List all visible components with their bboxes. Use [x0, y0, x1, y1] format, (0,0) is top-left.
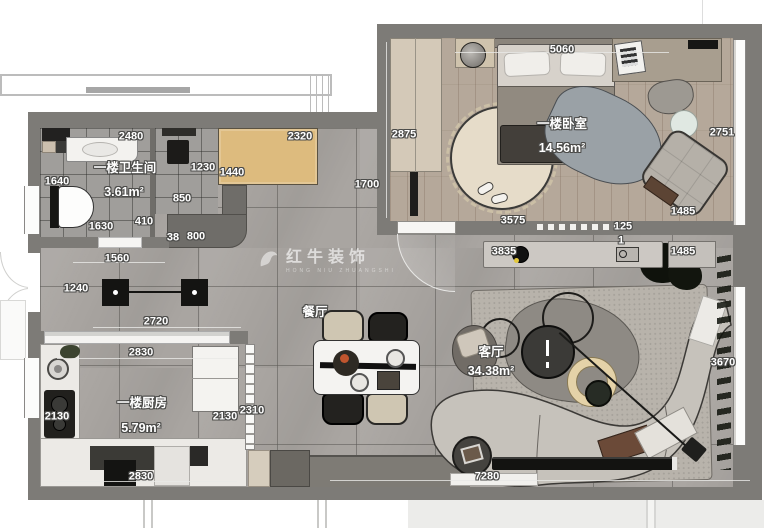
fridge [192, 346, 239, 412]
watermark-subtitle: HONG NIU ZHUANGSHI [286, 268, 396, 274]
ceiling-light-2-dot [192, 290, 197, 295]
coffee-table-dot [546, 362, 549, 368]
exterior-seam-topright [702, 0, 703, 24]
window-living-right [733, 287, 746, 445]
bench-block-beige [248, 450, 270, 487]
wall-bedroom-left [377, 24, 390, 235]
watermark-brand: 红牛装饰 [286, 250, 396, 266]
wall-bath-laundry-divider [150, 128, 155, 237]
ceiling-light-1-dot [113, 290, 118, 295]
side-stool-green [585, 380, 612, 407]
wall-bottom [28, 487, 762, 500]
bedroom-wall-dashes [537, 224, 615, 230]
entry-opening [28, 253, 40, 312]
centerpiece-flower [340, 354, 349, 363]
stove-burner-1 [51, 396, 68, 413]
nightstand-lamp [460, 42, 486, 68]
wall-bedroom-top [377, 24, 762, 38]
wall-bathroom-bottom-a [40, 237, 98, 248]
table-plate-2 [350, 373, 369, 392]
exterior-column-left1 [143, 500, 153, 528]
wardrobe-divider [415, 38, 416, 172]
console-speaker-dot [514, 258, 519, 263]
dim-line-2830-top [57, 358, 237, 359]
wall-kitchen-top-a [28, 331, 44, 344]
entry-door-arc-1 [0, 252, 30, 288]
counter-block-dark [190, 446, 208, 466]
dim-line-2830-bottom [57, 481, 237, 482]
entry-porch-outline [0, 300, 26, 360]
dining-chair-sw [322, 393, 364, 425]
console-device-knob [619, 250, 627, 258]
laundry-counter-vertical [222, 185, 247, 216]
window-kitchen-left [24, 358, 40, 418]
dining-chair-ne [368, 312, 408, 342]
laundry-counter [167, 214, 247, 248]
soundbar-bench [492, 457, 674, 470]
bed-pillow-left [503, 51, 550, 77]
stove-burner-2 [53, 418, 66, 431]
bathroom-basin [82, 142, 118, 157]
bedroom-door-leaf [397, 221, 456, 234]
exterior-paving-bottom [408, 500, 764, 528]
wall-kitchen-top-b [230, 331, 248, 344]
floor-plan: 红牛装饰 HONG NIU ZHUANGSHI 2480232028755060… [0, 0, 764, 528]
counter-block-light [154, 446, 190, 486]
dim-line-5060 [455, 52, 669, 53]
balcony-columns [310, 74, 332, 112]
washing-machine [167, 140, 189, 164]
kitchen-sink-drain [54, 365, 62, 373]
window-bedroom-right [733, 40, 746, 225]
watermark: 红牛装饰 HONG NIU ZHUANGSHI [258, 248, 396, 275]
exterior-column-left2 [317, 500, 327, 528]
table-tray [377, 371, 400, 390]
table-plate-1 [386, 349, 405, 368]
paving-seam [646, 500, 656, 528]
coffee-table-mark [546, 340, 549, 356]
watermark-bull-icon [258, 248, 280, 275]
entry-wood-cabinet [218, 128, 318, 185]
kitchen-folding-door [245, 344, 255, 450]
wardrobe-slit [410, 172, 418, 216]
counter-appliance-2 [104, 460, 136, 486]
dining-chair-nw [322, 310, 364, 342]
window-bath-left [24, 186, 40, 234]
dim-line-1560 [73, 262, 165, 263]
laundry-shelf [162, 128, 196, 136]
bathroom-door-threshold [98, 237, 142, 248]
soundbar-endcap [672, 457, 677, 470]
desk-keyboard [688, 40, 718, 49]
dining-chair-se [366, 393, 408, 425]
fridge-divider [192, 378, 239, 379]
balcony-bar [86, 87, 190, 93]
bed-pillow-right [560, 51, 607, 77]
bench-block-dark [270, 450, 310, 487]
wall-bathroom-bottom-b [142, 237, 169, 248]
magazine-print [620, 47, 638, 67]
dim-line-7280 [330, 480, 750, 481]
tv-console-right [668, 241, 716, 268]
dim-line-2720 [93, 327, 241, 328]
dim-line-2875 [386, 42, 387, 218]
bedroom-wardrobe [390, 38, 442, 172]
wall-top-left [28, 112, 380, 128]
bathroom-cabinet-beige [42, 141, 56, 153]
kitchen-sliding-door [44, 331, 230, 344]
wall-vine-plants [717, 248, 731, 470]
